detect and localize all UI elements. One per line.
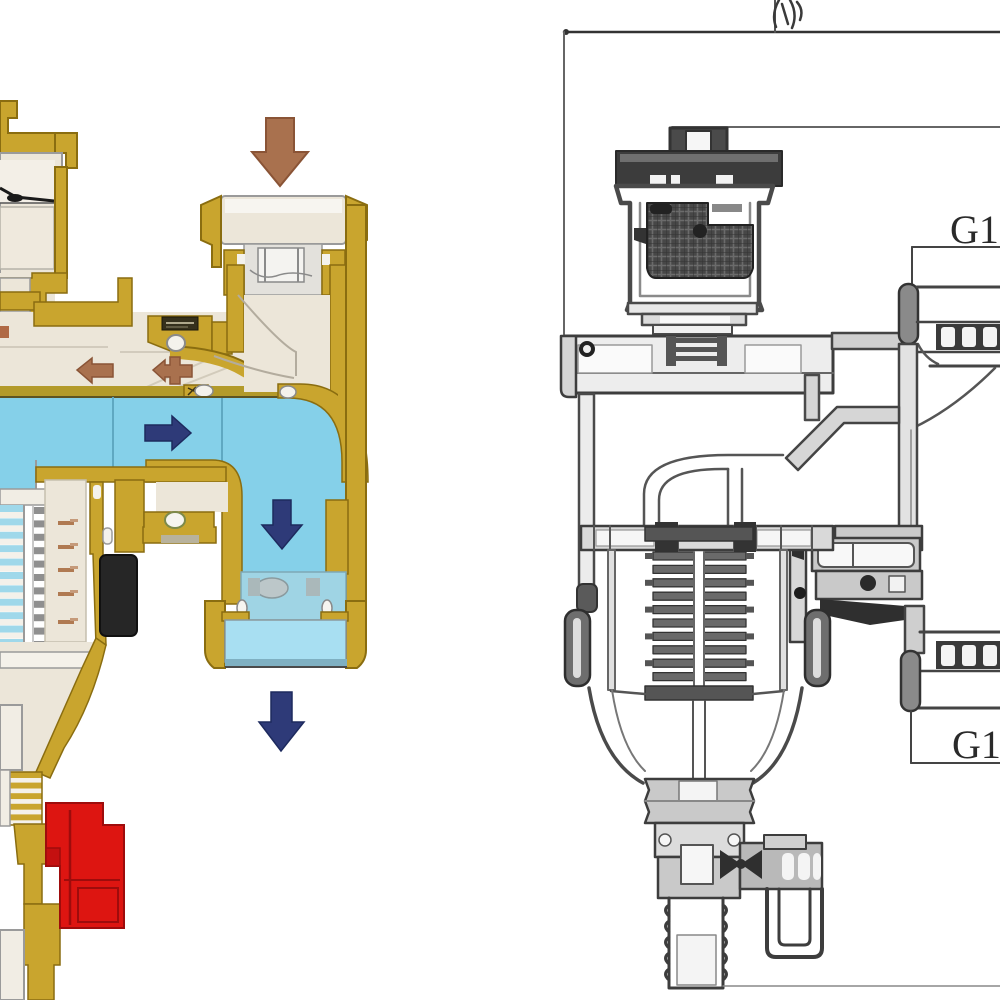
svg-text:G1: G1: [950, 207, 999, 252]
svg-text:G1: G1: [952, 722, 1000, 767]
